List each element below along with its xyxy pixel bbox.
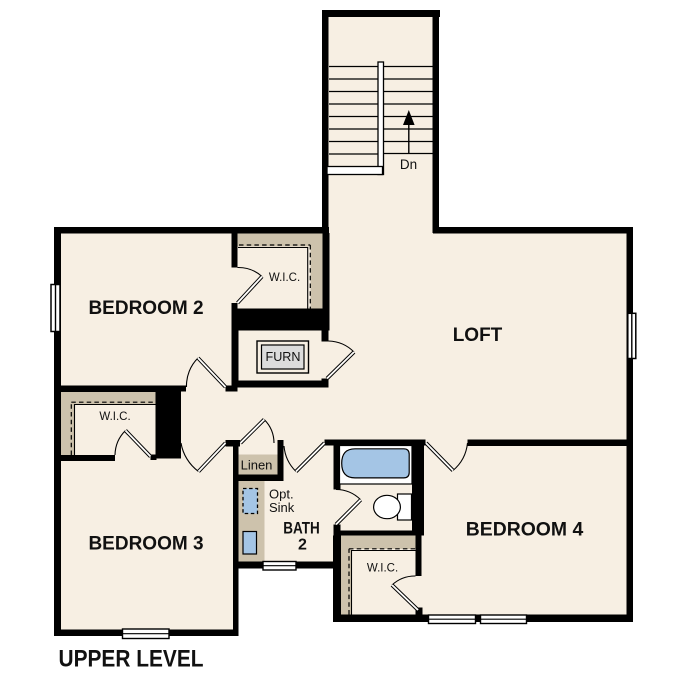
svg-text:BEDROOM 2: BEDROOM 2: [88, 298, 203, 319]
svg-text:UPPER LEVEL: UPPER LEVEL: [59, 646, 204, 673]
svg-text:2: 2: [298, 537, 307, 554]
svg-text:BATH: BATH: [283, 519, 320, 538]
svg-text:Sink: Sink: [269, 500, 295, 515]
svg-text:Linen: Linen: [241, 458, 273, 473]
svg-text:W.I.C.: W.I.C.: [269, 272, 300, 284]
svg-text:FURN: FURN: [266, 349, 301, 364]
svg-text:W.I.C.: W.I.C.: [99, 411, 130, 423]
svg-text:W.I.C.: W.I.C.: [367, 563, 398, 575]
svg-text:LOFT: LOFT: [453, 325, 503, 346]
svg-text:BEDROOM 3: BEDROOM 3: [88, 534, 203, 555]
svg-text:Dn: Dn: [400, 157, 417, 172]
svg-text:BEDROOM 4: BEDROOM 4: [466, 520, 584, 541]
